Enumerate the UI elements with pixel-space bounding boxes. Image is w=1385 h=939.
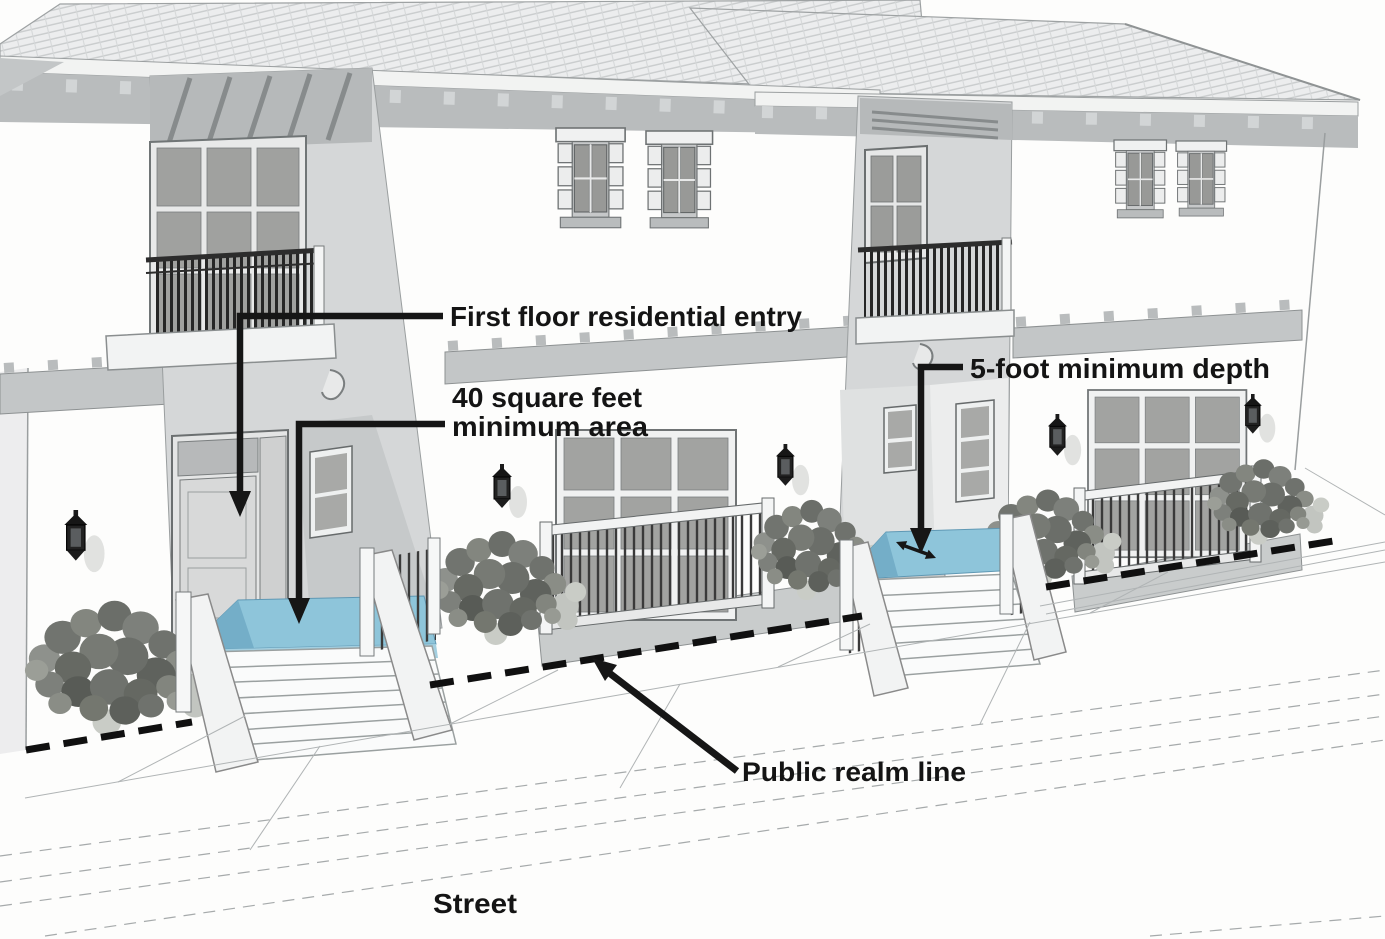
label-min-depth: 5-foot minimum depth [970, 353, 1270, 384]
newel-post [1000, 514, 1013, 614]
newel-post [428, 538, 440, 634]
label-min-area-line1: 40 square feet [452, 382, 642, 413]
wall-lantern [492, 464, 527, 518]
reveal-window [310, 446, 352, 538]
bay-back-window [884, 405, 916, 473]
upper-window-2 [646, 131, 713, 228]
wall-lantern [64, 510, 104, 572]
wall-lantern [1244, 394, 1276, 443]
cornice-band-middle [445, 326, 862, 384]
wall-lantern [1048, 414, 1081, 465]
door-sidelight [260, 436, 286, 627]
label-min-area-line2: minimum area [452, 411, 648, 442]
architectural-diagram: First floor residential entry 40 square … [0, 0, 1385, 939]
door-transom [178, 438, 258, 476]
upper-window-1 [556, 128, 625, 228]
leader-public-realm [608, 672, 737, 771]
newel-post [360, 548, 374, 656]
upper-window-4 [1176, 141, 1227, 216]
left-corner-return-wall [0, 368, 28, 754]
wall-lantern [776, 444, 809, 495]
right-entry-bay [838, 96, 1014, 575]
upper-window-3 [1114, 140, 1166, 218]
label-public-realm: Public realm line [742, 757, 966, 787]
label-street: Street [433, 888, 517, 919]
bay-reveal-window [956, 400, 994, 502]
right-corner-edge [1295, 133, 1325, 470]
label-first-floor-entry: First floor residential entry [450, 301, 802, 332]
newel-post [840, 540, 853, 650]
newel-post [176, 592, 191, 712]
